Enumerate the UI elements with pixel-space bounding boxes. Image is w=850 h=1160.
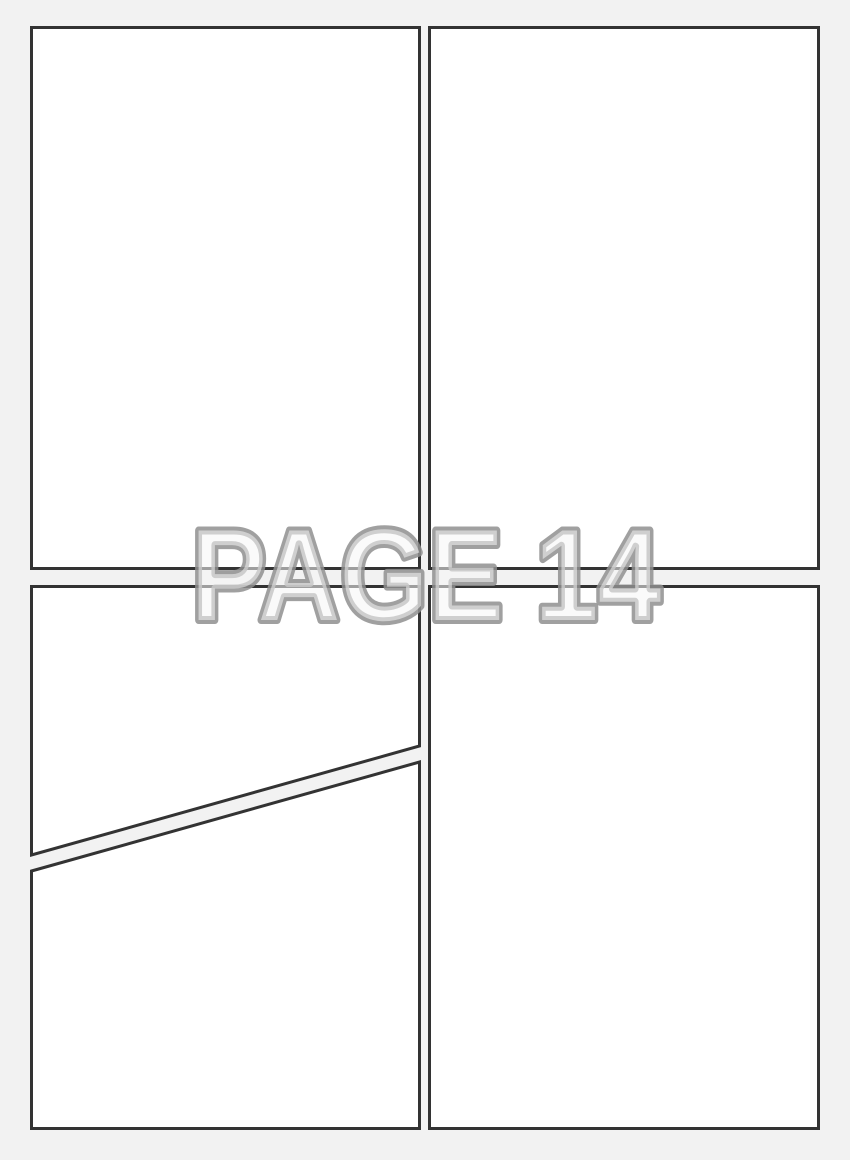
- panel-top-right: [428, 26, 820, 570]
- panel-top-left: [30, 26, 421, 570]
- comic-page-template: PAGE 14: [0, 0, 850, 1160]
- panel-bottom-right: [428, 585, 820, 1130]
- panel-bottom-left-group: [30, 585, 421, 1130]
